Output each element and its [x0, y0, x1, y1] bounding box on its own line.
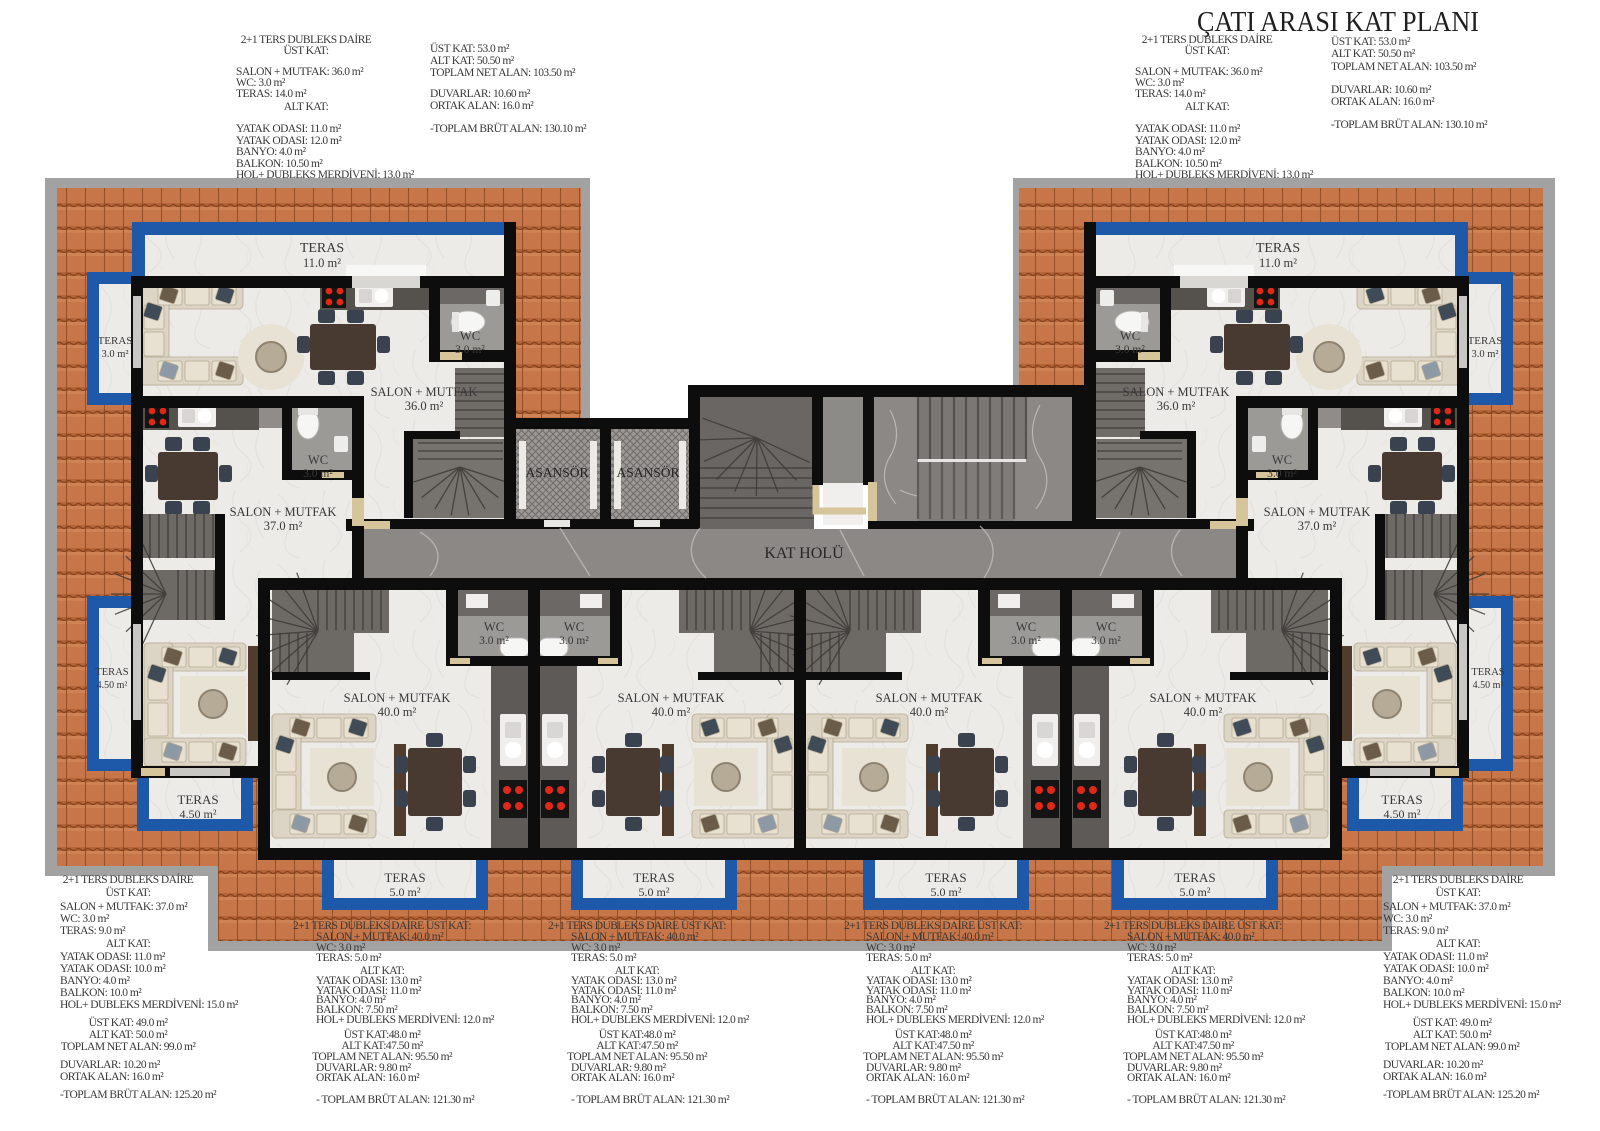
- svg-text:40.0 m²: 40.0 m²: [652, 705, 691, 719]
- svg-text:HOL+ DUBLEKS MERDİVENİ: 13.0 m: HOL+ DUBLEKS MERDİVENİ: 13.0 m²: [236, 167, 415, 181]
- svg-text:2+1 TERS DUBLEKS DAİRE ÜST KAT: 2+1 TERS DUBLEKS DAİRE ÜST KAT:: [1104, 918, 1282, 932]
- svg-text:TERAS: 9.0 m²: TERAS: 9.0 m²: [60, 925, 126, 937]
- svg-text:TOPLAM NET ALAN: 103.50 m²: TOPLAM NET ALAN: 103.50 m²: [1331, 61, 1477, 73]
- svg-text:ALT KAT:: ALT KAT:: [1436, 938, 1481, 950]
- svg-text:WC: WC: [484, 620, 504, 634]
- svg-text:3.0 m²: 3.0 m²: [559, 635, 589, 647]
- svg-text:5.0 m²: 5.0 m²: [390, 885, 421, 899]
- svg-text:ASANSÖR: ASANSÖR: [525, 465, 588, 480]
- svg-text:ÜST KAT: 53.0 m²: ÜST KAT: 53.0 m²: [430, 41, 510, 55]
- svg-text:ÜST KAT:48.0 m²: ÜST KAT:48.0 m²: [599, 1027, 677, 1041]
- svg-text:ASANSÖR: ASANSÖR: [616, 465, 679, 480]
- svg-text:4.50 m²: 4.50 m²: [180, 807, 217, 821]
- svg-text:3.0 m²: 3.0 m²: [303, 468, 333, 480]
- svg-text:TERAS: TERAS: [1471, 667, 1504, 678]
- svg-text:ALT KAT: 50.50 m²: ALT KAT: 50.50 m²: [1331, 48, 1416, 60]
- svg-text:YATAK ODASI: 11.0 m²: YATAK ODASI: 11.0 m²: [60, 951, 166, 963]
- svg-text:TERAS: TERAS: [95, 667, 128, 678]
- svg-text:ÜST KAT: 49.0 m²: ÜST KAT: 49.0 m²: [1413, 1015, 1493, 1029]
- svg-text:3.0 m²: 3.0 m²: [1011, 635, 1041, 647]
- svg-text:ÜST KAT:: ÜST KAT:: [106, 885, 151, 899]
- svg-text:TERAS: 14.0 m²: TERAS: 14.0 m²: [1135, 88, 1206, 100]
- svg-text:SALON + MUTFAK: SALON + MUTFAK: [1264, 505, 1371, 519]
- svg-text:37.0 m²: 37.0 m²: [264, 519, 303, 533]
- svg-text:WC: WC: [1096, 620, 1116, 634]
- svg-text:HOL+ DUBLEKS MERDİVENİ: 12.0 m: HOL+ DUBLEKS MERDİVENİ: 12.0 m²: [316, 1012, 495, 1026]
- svg-text:BANYO: 4.0 m²: BANYO: 4.0 m²: [1135, 146, 1206, 158]
- svg-text:ÜST KAT:: ÜST KAT:: [1436, 885, 1481, 899]
- svg-text:TOPLAM NET ALAN: 99.0 m²: TOPLAM NET ALAN: 99.0 m²: [61, 1041, 197, 1053]
- svg-text:40.0 m²: 40.0 m²: [378, 705, 417, 719]
- svg-text:ALT KAT: 50.0 m²: ALT KAT: 50.0 m²: [1413, 1029, 1493, 1041]
- svg-text:3.0 m²: 3.0 m²: [479, 635, 509, 647]
- svg-text:ÜST KAT:: ÜST KAT:: [284, 43, 329, 57]
- svg-text:SALON + MUTFAK: 37.0 m²: SALON + MUTFAK: 37.0 m²: [60, 901, 188, 913]
- svg-text:ALT KAT:: ALT KAT:: [284, 101, 329, 113]
- svg-text:ORTAK ALAN: 16.0 m²: ORTAK ALAN: 16.0 m²: [60, 1071, 164, 1083]
- svg-text:2+1 TERS DUBLEKS DAİRE: 2+1 TERS DUBLEKS DAİRE: [63, 872, 194, 886]
- svg-text:-TOPLAM BRÜT ALAN: 130.10 m²: -TOPLAM BRÜT ALAN: 130.10 m²: [430, 121, 587, 135]
- svg-text:ORTAK ALAN: 16.0 m²: ORTAK ALAN: 16.0 m²: [1127, 1072, 1231, 1084]
- svg-text:5.0 m²: 5.0 m²: [931, 885, 962, 899]
- svg-text:WC: WC: [1016, 620, 1036, 634]
- svg-text:11.0 m²: 11.0 m²: [303, 256, 341, 270]
- svg-text:TERAS: 5.0 m²: TERAS: 5.0 m²: [316, 952, 382, 964]
- svg-text:2+1 TERS DUBLEKS DAİRE: 2+1 TERS DUBLEKS DAİRE: [1393, 872, 1524, 886]
- svg-text:2+1 TERS DUBLEKS DAİRE ÜST KAT: 2+1 TERS DUBLEKS DAİRE ÜST KAT:: [548, 918, 726, 932]
- svg-text:SALON + MUTFAK: SALON + MUTFAK: [344, 691, 451, 705]
- svg-text:WC: WC: [1120, 329, 1140, 343]
- svg-text:TERAS: 5.0 m²: TERAS: 5.0 m²: [866, 952, 932, 964]
- svg-text:-TOPLAM BRÜT ALAN: 125.20 m²: -TOPLAM BRÜT ALAN: 125.20 m²: [60, 1087, 217, 1101]
- svg-text:- TOPLAM BRÜT ALAN: 121.30 m²: - TOPLAM BRÜT ALAN: 121.30 m²: [866, 1092, 1025, 1106]
- svg-text:3.0 m²: 3.0 m²: [1091, 635, 1121, 647]
- svg-text:TERAS: TERAS: [1468, 335, 1503, 347]
- svg-text:WC: WC: [564, 620, 584, 634]
- svg-text:ÜST KAT:: ÜST KAT:: [1185, 43, 1230, 57]
- svg-text:TERAS: TERAS: [177, 792, 218, 807]
- svg-text:3.0 m²: 3.0 m²: [1267, 468, 1297, 480]
- svg-text:2+1 TERS DUBLEKS DAİRE: 2+1 TERS DUBLEKS DAİRE: [241, 32, 372, 46]
- svg-text:BANYO: 4.0 m²: BANYO: 4.0 m²: [236, 146, 307, 158]
- svg-text:SALON + MUTFAK: SALON + MUTFAK: [371, 385, 478, 399]
- svg-text:TERAS: TERAS: [1256, 241, 1300, 256]
- svg-text:ORTAK ALAN: 16.0 m²: ORTAK ALAN: 16.0 m²: [316, 1072, 420, 1084]
- svg-text:36.0 m²: 36.0 m²: [405, 399, 444, 413]
- svg-text:ALT KAT: 50.50 m²: ALT KAT: 50.50 m²: [430, 55, 515, 67]
- svg-text:SALON + MUTFAK: SALON + MUTFAK: [230, 505, 337, 519]
- svg-text:-TOPLAM BRÜT ALAN: 130.10 m²: -TOPLAM BRÜT ALAN: 130.10 m²: [1331, 117, 1488, 131]
- svg-text:5.0 m²: 5.0 m²: [1180, 885, 1211, 899]
- svg-text:36.0 m²: 36.0 m²: [1157, 399, 1196, 413]
- svg-text:WC: 3.0 m²: WC: 3.0 m²: [60, 913, 110, 925]
- svg-text:SALON + MUTFAK: SALON + MUTFAK: [1123, 385, 1230, 399]
- svg-text:DUVARLAR: 10.60 m²: DUVARLAR: 10.60 m²: [1331, 84, 1432, 96]
- svg-text:BANYO: 4.0 m²: BANYO: 4.0 m²: [1383, 975, 1454, 987]
- svg-text:TERAS: TERAS: [633, 870, 674, 885]
- svg-text:3.0 m²: 3.0 m²: [455, 344, 485, 356]
- svg-text:- TOPLAM BRÜT ALAN: 121.30 m²: - TOPLAM BRÜT ALAN: 121.30 m²: [571, 1092, 730, 1106]
- svg-text:- TOPLAM BRÜT ALAN: 121.30 m²: - TOPLAM BRÜT ALAN: 121.30 m²: [1127, 1092, 1286, 1106]
- svg-text:HOL+ DUBLEKS MERDİVENİ: 13.0 m: HOL+ DUBLEKS MERDİVENİ: 13.0 m²: [1135, 167, 1314, 181]
- svg-text:SALON + MUTFAK: 37.0 m²: SALON + MUTFAK: 37.0 m²: [1383, 901, 1511, 913]
- svg-text:HOL+ DUBLEKS MERDİVENİ: 15.0 m: HOL+ DUBLEKS MERDİVENİ: 15.0 m²: [60, 997, 239, 1011]
- svg-text:BALKON: 10.0 m²: BALKON: 10.0 m²: [60, 987, 142, 999]
- svg-text:WC: 3.0 m²: WC: 3.0 m²: [1383, 913, 1433, 925]
- svg-text:TERAS: TERAS: [1174, 870, 1215, 885]
- svg-text:TERAS: TERAS: [98, 335, 133, 347]
- svg-text:11.0 m²: 11.0 m²: [1259, 256, 1297, 270]
- svg-text:3.0 m²: 3.0 m²: [1471, 349, 1498, 360]
- svg-text:ORTAK ALAN: 16.0 m²: ORTAK ALAN: 16.0 m²: [571, 1072, 675, 1084]
- svg-text:DUVARLAR: 10.60 m²: DUVARLAR: 10.60 m²: [430, 88, 531, 100]
- svg-text:YATAK ODASI: 11.0 m²: YATAK ODASI: 11.0 m²: [1135, 123, 1241, 135]
- svg-text:TOPLAM NET ALAN: 99.0 m²: TOPLAM NET ALAN: 99.0 m²: [1385, 1041, 1521, 1053]
- svg-text:SALON + MUTFAK: SALON + MUTFAK: [1150, 691, 1257, 705]
- svg-text:ALT KAT:: ALT KAT:: [1185, 101, 1230, 113]
- svg-text:WC: WC: [460, 329, 480, 343]
- svg-text:DUVARLAR: 10.20 m²: DUVARLAR: 10.20 m²: [1383, 1059, 1484, 1071]
- svg-text:BALKON: 10.0 m²: BALKON: 10.0 m²: [1383, 987, 1465, 999]
- svg-text:4.50 m²: 4.50 m²: [1384, 807, 1421, 821]
- svg-text:ÜST KAT:48.0 m²: ÜST KAT:48.0 m²: [1155, 1027, 1233, 1041]
- svg-text:TOPLAM NET ALAN: 103.50 m²: TOPLAM NET ALAN: 103.50 m²: [430, 67, 576, 79]
- svg-text:HOL+ DUBLEKS MERDİVENİ: 12.0 m: HOL+ DUBLEKS MERDİVENİ: 12.0 m²: [571, 1012, 750, 1026]
- svg-text:HOL+ DUBLEKS MERDİVENİ: 12.0 m: HOL+ DUBLEKS MERDİVENİ: 12.0 m²: [1127, 1012, 1306, 1026]
- svg-text:ÜST KAT:48.0 m²: ÜST KAT:48.0 m²: [344, 1027, 422, 1041]
- svg-text:4.50 m²: 4.50 m²: [1473, 680, 1504, 691]
- svg-text:YATAK ODASI: 11.0 m²: YATAK ODASI: 11.0 m²: [1383, 951, 1489, 963]
- svg-text:HOL+ DUBLEKS MERDİVENİ: 15.0 m: HOL+ DUBLEKS MERDİVENİ: 15.0 m²: [1383, 997, 1562, 1011]
- svg-text:3.0 m²: 3.0 m²: [1115, 344, 1145, 356]
- svg-text:HOL+ DUBLEKS MERDİVENİ: 12.0 m: HOL+ DUBLEKS MERDİVENİ: 12.0 m²: [866, 1012, 1045, 1026]
- svg-text:YATAK ODASI: 10.0 m²: YATAK ODASI: 10.0 m²: [60, 963, 166, 975]
- svg-text:DUVARLAR: 10.20 m²: DUVARLAR: 10.20 m²: [60, 1059, 161, 1071]
- svg-text:3.0 m²: 3.0 m²: [101, 349, 128, 360]
- svg-text:5.0 m²: 5.0 m²: [639, 885, 670, 899]
- svg-text:ALT KAT:: ALT KAT:: [106, 938, 151, 950]
- svg-text:SALON + MUTFAK: SALON + MUTFAK: [876, 691, 983, 705]
- svg-text:YATAK ODASI: 11.0 m²: YATAK ODASI: 11.0 m²: [236, 123, 342, 135]
- svg-text:TERAS: 5.0 m²: TERAS: 5.0 m²: [571, 952, 637, 964]
- svg-text:TERAS: 14.0 m²: TERAS: 14.0 m²: [236, 88, 307, 100]
- svg-text:2+1 TERS DUBLEKS DAİRE ÜST KAT: 2+1 TERS DUBLEKS DAİRE ÜST KAT:: [844, 918, 1022, 932]
- svg-text:KAT HOLÜ: KAT HOLÜ: [764, 544, 844, 562]
- svg-text:ÜST KAT: 49.0 m²: ÜST KAT: 49.0 m²: [89, 1015, 169, 1029]
- svg-text:ÜST KAT:48.0 m²: ÜST KAT:48.0 m²: [895, 1027, 973, 1041]
- svg-text:ORTAK ALAN: 16.0 m²: ORTAK ALAN: 16.0 m²: [866, 1072, 970, 1084]
- svg-text:40.0 m²: 40.0 m²: [1184, 705, 1223, 719]
- svg-text:ORTAK ALAN: 16.0 m²: ORTAK ALAN: 16.0 m²: [430, 100, 534, 112]
- svg-text:40.0 m²: 40.0 m²: [910, 705, 949, 719]
- svg-text:TERAS: 9.0 m²: TERAS: 9.0 m²: [1383, 925, 1449, 937]
- svg-text:4.50 m²: 4.50 m²: [97, 680, 128, 691]
- svg-text:ORTAK ALAN: 16.0 m²: ORTAK ALAN: 16.0 m²: [1331, 96, 1435, 108]
- svg-text:2+1 TERS DUBLEKS DAİRE ÜST KAT: 2+1 TERS DUBLEKS DAİRE ÜST KAT:: [293, 918, 471, 932]
- svg-text:TERAS: TERAS: [384, 870, 425, 885]
- svg-text:-TOPLAM BRÜT ALAN: 125.20 m²: -TOPLAM BRÜT ALAN: 125.20 m²: [1383, 1087, 1540, 1101]
- svg-text:SALON + MUTFAK: SALON + MUTFAK: [618, 691, 725, 705]
- svg-text:WC: WC: [1272, 453, 1292, 467]
- svg-text:ORTAK ALAN: 16.0 m²: ORTAK ALAN: 16.0 m²: [1383, 1071, 1487, 1083]
- svg-text:TERAS: TERAS: [925, 870, 966, 885]
- svg-text:TERAS: TERAS: [1381, 792, 1422, 807]
- svg-text:BANYO: 4.0 m²: BANYO: 4.0 m²: [60, 975, 131, 987]
- svg-text:2+1 TERS DUBLEKS DAİRE: 2+1 TERS DUBLEKS DAİRE: [1142, 32, 1273, 46]
- svg-text:YATAK ODASI: 10.0 m²: YATAK ODASI: 10.0 m²: [1383, 963, 1489, 975]
- svg-text:TERAS: TERAS: [300, 241, 344, 256]
- svg-text:37.0 m²: 37.0 m²: [1298, 519, 1337, 533]
- svg-text:TERAS: 5.0 m²: TERAS: 5.0 m²: [1127, 952, 1193, 964]
- svg-text:ALT KAT: 50.0 m²: ALT KAT: 50.0 m²: [89, 1029, 169, 1041]
- svg-text:- TOPLAM BRÜT ALAN: 121.30 m²: - TOPLAM BRÜT ALAN: 121.30 m²: [316, 1092, 475, 1106]
- svg-text:ÜST KAT: 53.0 m²: ÜST KAT: 53.0 m²: [1331, 34, 1411, 48]
- svg-text:WC: WC: [308, 453, 328, 467]
